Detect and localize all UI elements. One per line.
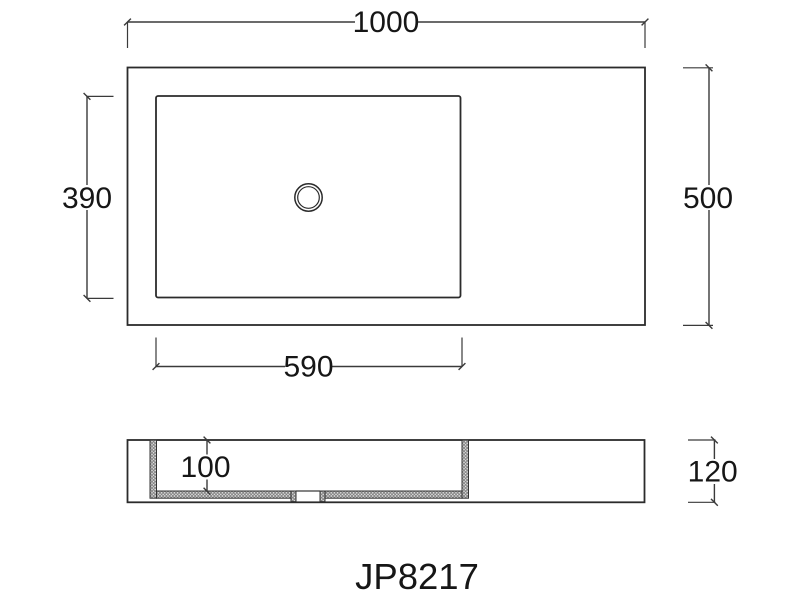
- svg-text:JP8217: JP8217: [355, 556, 479, 597]
- svg-text:100: 100: [180, 451, 230, 484]
- svg-text:500: 500: [683, 182, 733, 215]
- svg-text:590: 590: [283, 351, 333, 384]
- svg-text:120: 120: [688, 456, 738, 489]
- svg-text:1000: 1000: [353, 6, 420, 39]
- svg-text:390: 390: [62, 182, 112, 215]
